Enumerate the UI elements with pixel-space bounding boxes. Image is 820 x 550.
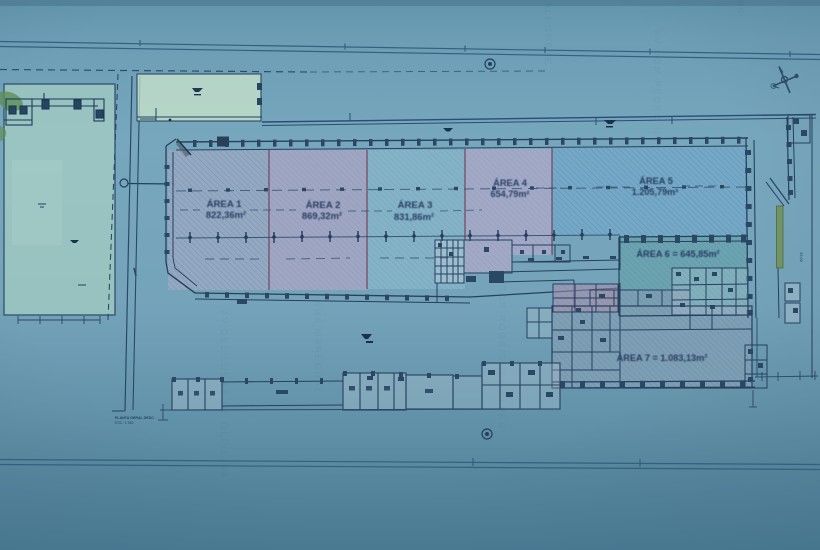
- svg-text:831,86m²: 831,86m²: [394, 211, 434, 222]
- svg-text:ALEGRETE: ALEGRETE: [543, 2, 553, 66]
- svg-text:35,00: 35,00: [799, 252, 804, 263]
- svg-text:RS: RS: [735, 0, 745, 15]
- svg-text:822,36m²: 822,36m²: [206, 209, 246, 220]
- svg-text:ÁREA 4: ÁREA 4: [493, 178, 528, 188]
- svg-text:1.205,79m²: 1.205,79m²: [632, 187, 679, 197]
- svg-text:ÁREA 7 = 1.083,13m²: ÁREA 7 = 1.083,13m²: [617, 352, 708, 363]
- svg-text:654,79m²: 654,79m²: [491, 189, 530, 199]
- svg-text:ÁREA 3: ÁREA 3: [398, 199, 433, 211]
- svg-text:ESC. 1:750: ESC. 1:750: [115, 421, 133, 425]
- svg-text:869,32m²: 869,32m²: [302, 210, 342, 221]
- svg-text:PLANTA GERAL DESC.: PLANTA GERAL DESC.: [115, 416, 155, 420]
- svg-text:ÁREA 5: ÁREA 5: [639, 176, 673, 186]
- svg-text:ÁREA 6 = 645,85m²: ÁREA 6 = 645,85m²: [636, 248, 719, 259]
